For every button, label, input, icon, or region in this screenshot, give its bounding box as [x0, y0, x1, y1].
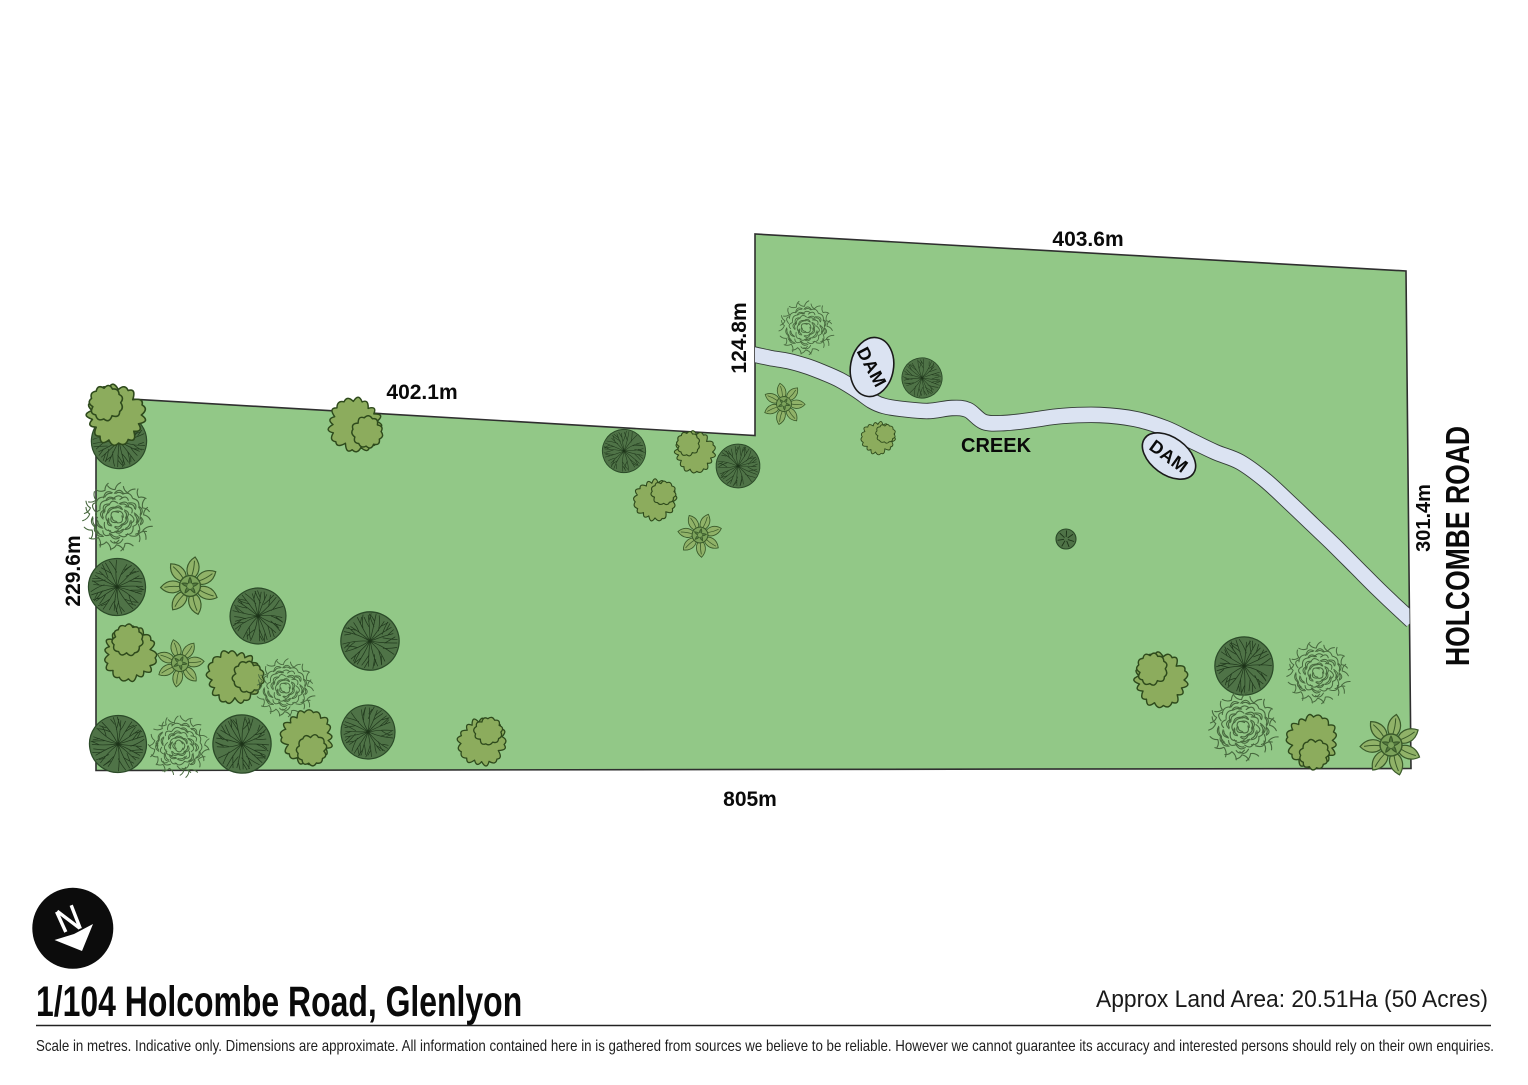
svg-text:402.1m: 402.1m	[386, 381, 457, 404]
svg-text:229.6m: 229.6m	[62, 535, 85, 606]
svg-text:CREEK: CREEK	[961, 435, 1032, 457]
svg-text:301.4m: 301.4m	[1413, 484, 1435, 552]
svg-text:Approx Land Area: 20.51Ha (50: Approx Land Area: 20.51Ha (50 Acres)	[1096, 986, 1488, 1013]
svg-text:124.8m: 124.8m	[728, 302, 751, 373]
svg-text:1/104 Holcombe Road, Glenlyon: 1/104 Holcombe Road, Glenlyon	[36, 979, 522, 1027]
svg-text:805m: 805m	[723, 788, 777, 811]
svg-text:Scale in metres. Indicative on: Scale in metres. Indicative only. Dimens…	[36, 1038, 1494, 1055]
svg-text:HOLCOMBE ROAD: HOLCOMBE ROAD	[1439, 426, 1476, 666]
svg-text:403.6m: 403.6m	[1052, 228, 1123, 251]
